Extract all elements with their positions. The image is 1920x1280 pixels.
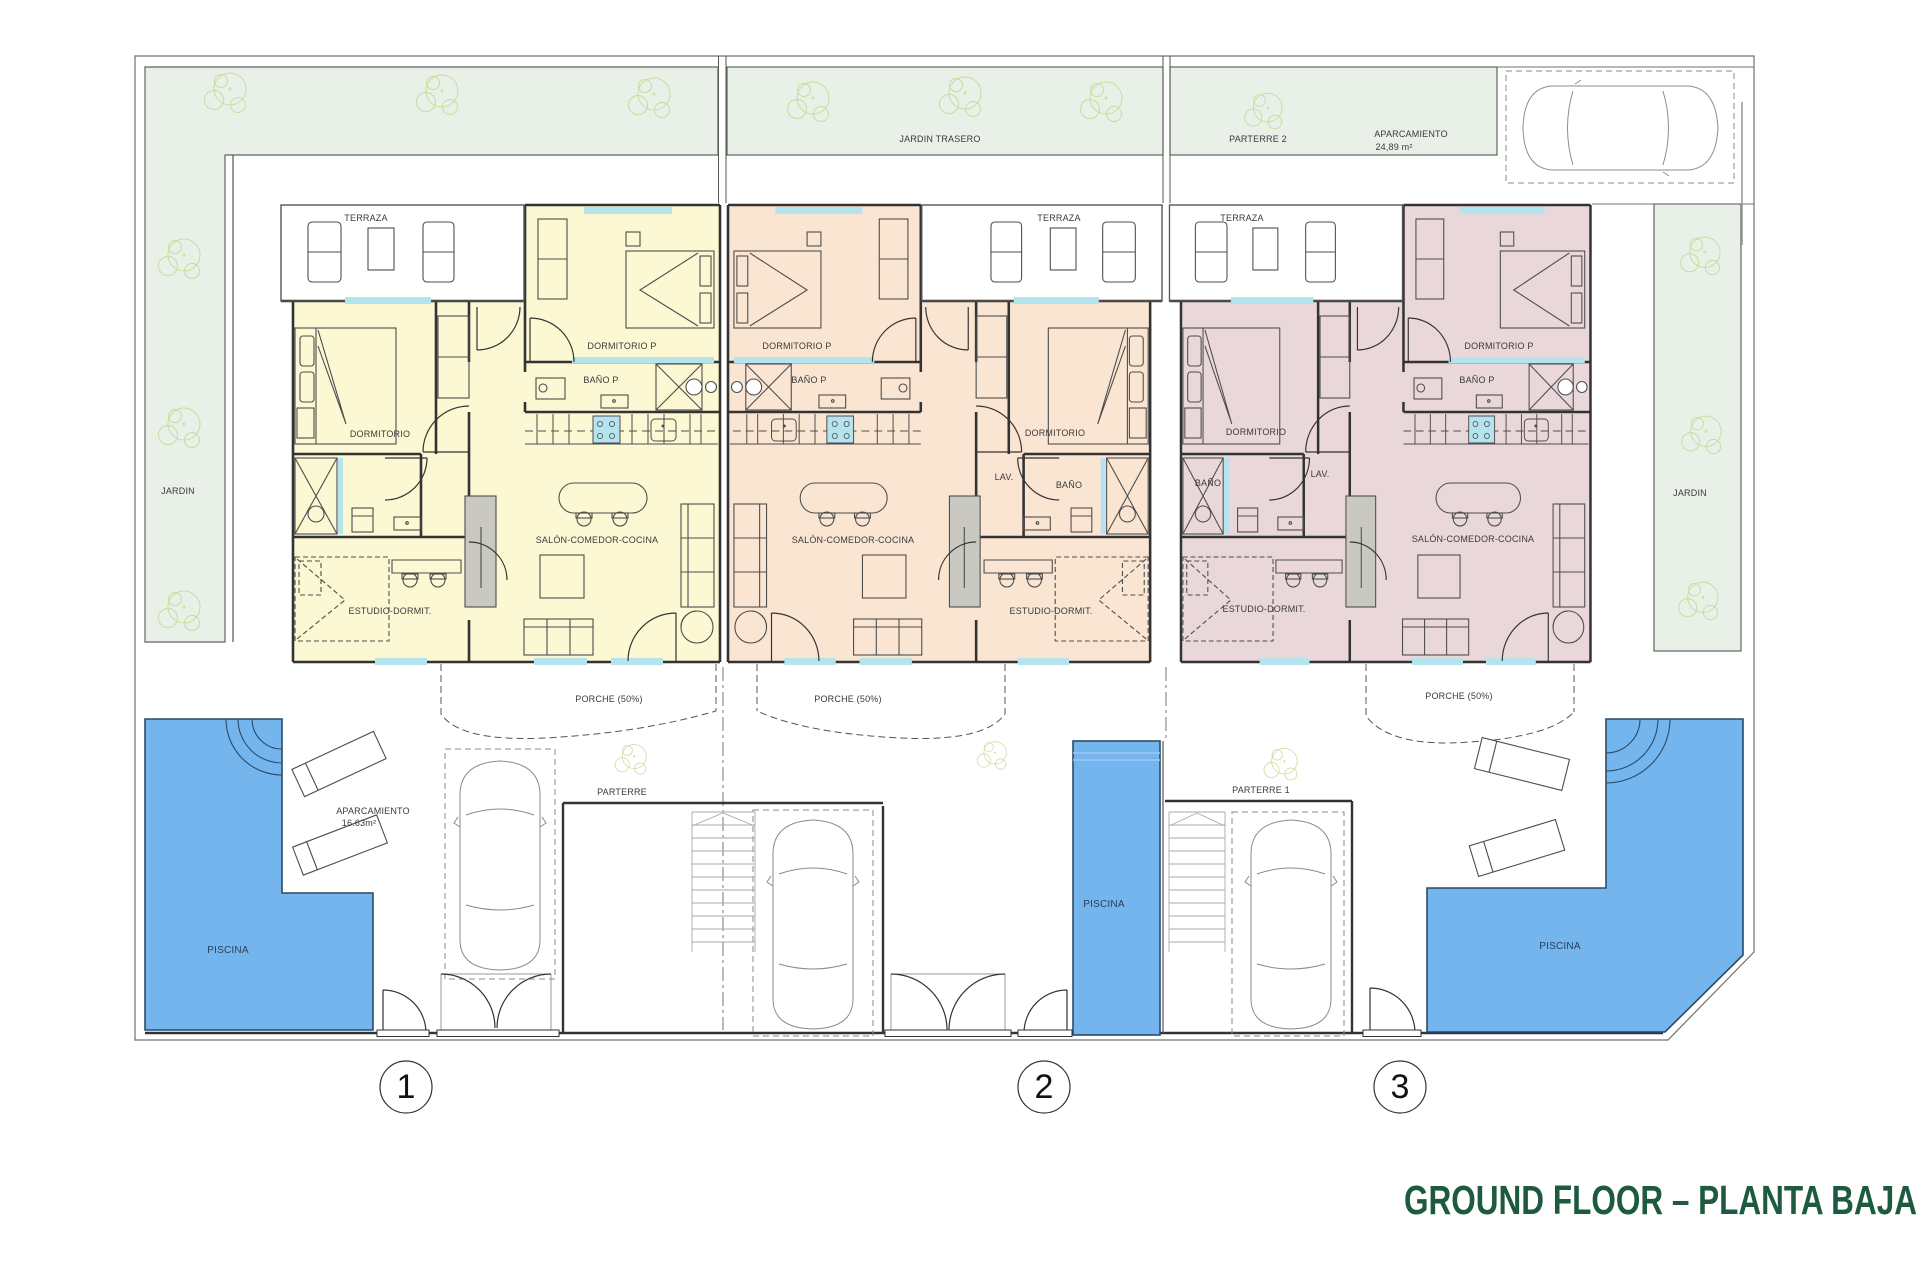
- svg-text:PORCHE (50%): PORCHE (50%): [1425, 691, 1492, 701]
- svg-text:BAÑO P: BAÑO P: [791, 375, 826, 385]
- svg-text:DORMITORIO P: DORMITORIO P: [1464, 341, 1533, 351]
- svg-text:2: 2: [1035, 1068, 1054, 1106]
- svg-text:DORMITORIO: DORMITORIO: [350, 429, 410, 439]
- svg-text:DORMITORIO: DORMITORIO: [1025, 428, 1085, 438]
- svg-text:SALÓN-COMEDOR-COCINA: SALÓN-COMEDOR-COCINA: [792, 535, 915, 545]
- svg-text:BAÑO P: BAÑO P: [1459, 375, 1494, 385]
- svg-text:TERRAZA: TERRAZA: [1220, 213, 1263, 223]
- svg-text:SALÓN-COMEDOR-COCINA: SALÓN-COMEDOR-COCINA: [536, 535, 659, 545]
- svg-text:DORMITORIO P: DORMITORIO P: [587, 341, 656, 351]
- svg-text:16.63m²: 16.63m²: [342, 818, 376, 828]
- svg-text:APARCAMIENTO: APARCAMIENTO: [1374, 129, 1448, 139]
- svg-text:APARCAMIENTO: APARCAMIENTO: [336, 806, 410, 816]
- svg-text:ESTUDIO-DORMIT.: ESTUDIO-DORMIT.: [349, 606, 432, 616]
- svg-text:1: 1: [397, 1068, 416, 1106]
- svg-text:BAÑO: BAÑO: [1056, 480, 1082, 490]
- svg-text:PARTERRE 1: PARTERRE 1: [1232, 785, 1290, 795]
- svg-text:DORMITORIO: DORMITORIO: [1226, 427, 1286, 437]
- svg-text:JARDIN TRASERO: JARDIN TRASERO: [899, 134, 980, 144]
- svg-text:PARTERRE: PARTERRE: [597, 787, 647, 797]
- svg-text:ESTUDIO-DORMIT.: ESTUDIO-DORMIT.: [1223, 604, 1306, 614]
- svg-text:JARDIN: JARDIN: [161, 486, 195, 496]
- svg-text:SALÓN-COMEDOR-COCINA: SALÓN-COMEDOR-COCINA: [1412, 534, 1535, 544]
- svg-text:TERRAZA: TERRAZA: [344, 213, 387, 223]
- svg-text:BAÑO P: BAÑO P: [583, 375, 618, 385]
- svg-text:BAÑO: BAÑO: [1195, 478, 1221, 488]
- svg-text:JARDIN: JARDIN: [1673, 488, 1707, 498]
- svg-text:PISCINA: PISCINA: [207, 945, 249, 956]
- svg-text:GROUND FLOOR – PLANTA BAJA: GROUND FLOOR – PLANTA BAJA: [1404, 1177, 1917, 1223]
- svg-text:PARTERRE 2: PARTERRE 2: [1229, 134, 1287, 144]
- svg-text:DORMITORIO P: DORMITORIO P: [762, 341, 831, 351]
- svg-text:3: 3: [1391, 1068, 1410, 1106]
- svg-text:LAV.: LAV.: [1311, 469, 1330, 479]
- svg-text:PORCHE (50%): PORCHE (50%): [814, 694, 881, 704]
- svg-text:PISCINA: PISCINA: [1539, 941, 1581, 952]
- svg-text:ESTUDIO-DORMIT.: ESTUDIO-DORMIT.: [1010, 606, 1093, 616]
- svg-text:PISCINA: PISCINA: [1083, 899, 1125, 910]
- svg-text:24,89 m²: 24,89 m²: [1375, 142, 1412, 152]
- svg-text:LAV.: LAV.: [995, 472, 1014, 482]
- svg-text:PORCHE (50%): PORCHE (50%): [575, 694, 642, 704]
- svg-text:TERRAZA: TERRAZA: [1037, 213, 1080, 223]
